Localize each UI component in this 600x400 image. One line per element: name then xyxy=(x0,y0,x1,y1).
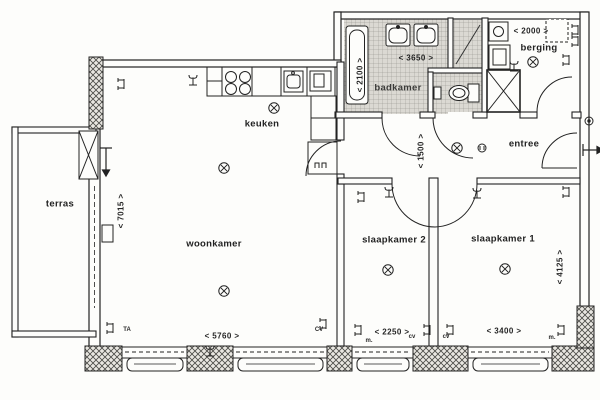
window-woonkamer-1 xyxy=(122,347,187,371)
duct-icon xyxy=(487,70,520,112)
dimension-5760: < 5760 > xyxy=(205,332,240,341)
annotation-m2: m. xyxy=(548,335,555,341)
shower-floor-tiles xyxy=(453,20,483,68)
window-slaapkamer2 xyxy=(352,347,413,371)
room-label-badkamer: badkamer xyxy=(374,83,421,94)
dimension-3400: < 3400 > xyxy=(487,327,522,336)
annotation-m1: m. xyxy=(365,338,372,344)
annotation-ta: TA xyxy=(123,327,131,333)
annotation-cv1: cv xyxy=(409,334,416,340)
room-label-keuken: keuken xyxy=(245,119,280,130)
meter-cupboard-dashed xyxy=(546,19,568,42)
annotation-cv2: cv xyxy=(443,334,450,340)
room-label-terras: terras xyxy=(46,199,74,210)
dimension-2250: < 2250 > xyxy=(375,328,410,337)
room-label-berging: berging xyxy=(521,43,558,54)
wall-heater xyxy=(102,225,113,242)
annotation-cv-caps: CV xyxy=(315,327,323,333)
wc-fountain xyxy=(434,87,441,99)
dimension-4125: < 4125 > xyxy=(556,250,565,285)
dimension-1500: < 1500 > xyxy=(417,134,426,169)
dimension-3650: < 3650 > xyxy=(399,54,434,63)
floorplan-drawing xyxy=(0,0,600,400)
window-woonkamer-2 xyxy=(233,347,327,371)
window-slaapkamer1 xyxy=(468,347,552,371)
room-label-woonkamer: woonkamer xyxy=(186,239,242,250)
terrace-door xyxy=(79,131,98,179)
floor-plan-page: terras woonkamer keuken badkamer berging… xyxy=(0,0,600,400)
room-label-slaapkamer1: slaapkamer 1 xyxy=(471,234,535,245)
toilet-icon xyxy=(434,84,479,102)
dimension-7015: < 7015 > xyxy=(117,194,126,229)
dimension-2100: < 2100 > xyxy=(356,58,365,93)
dimension-2000: < 2000 > xyxy=(514,27,549,36)
washbasin-1 xyxy=(386,24,410,46)
room-label-slaapkamer2: slaapkamer 2 xyxy=(362,235,426,246)
washbasin-2 xyxy=(414,24,438,46)
room-label-entree: entree xyxy=(509,139,539,150)
